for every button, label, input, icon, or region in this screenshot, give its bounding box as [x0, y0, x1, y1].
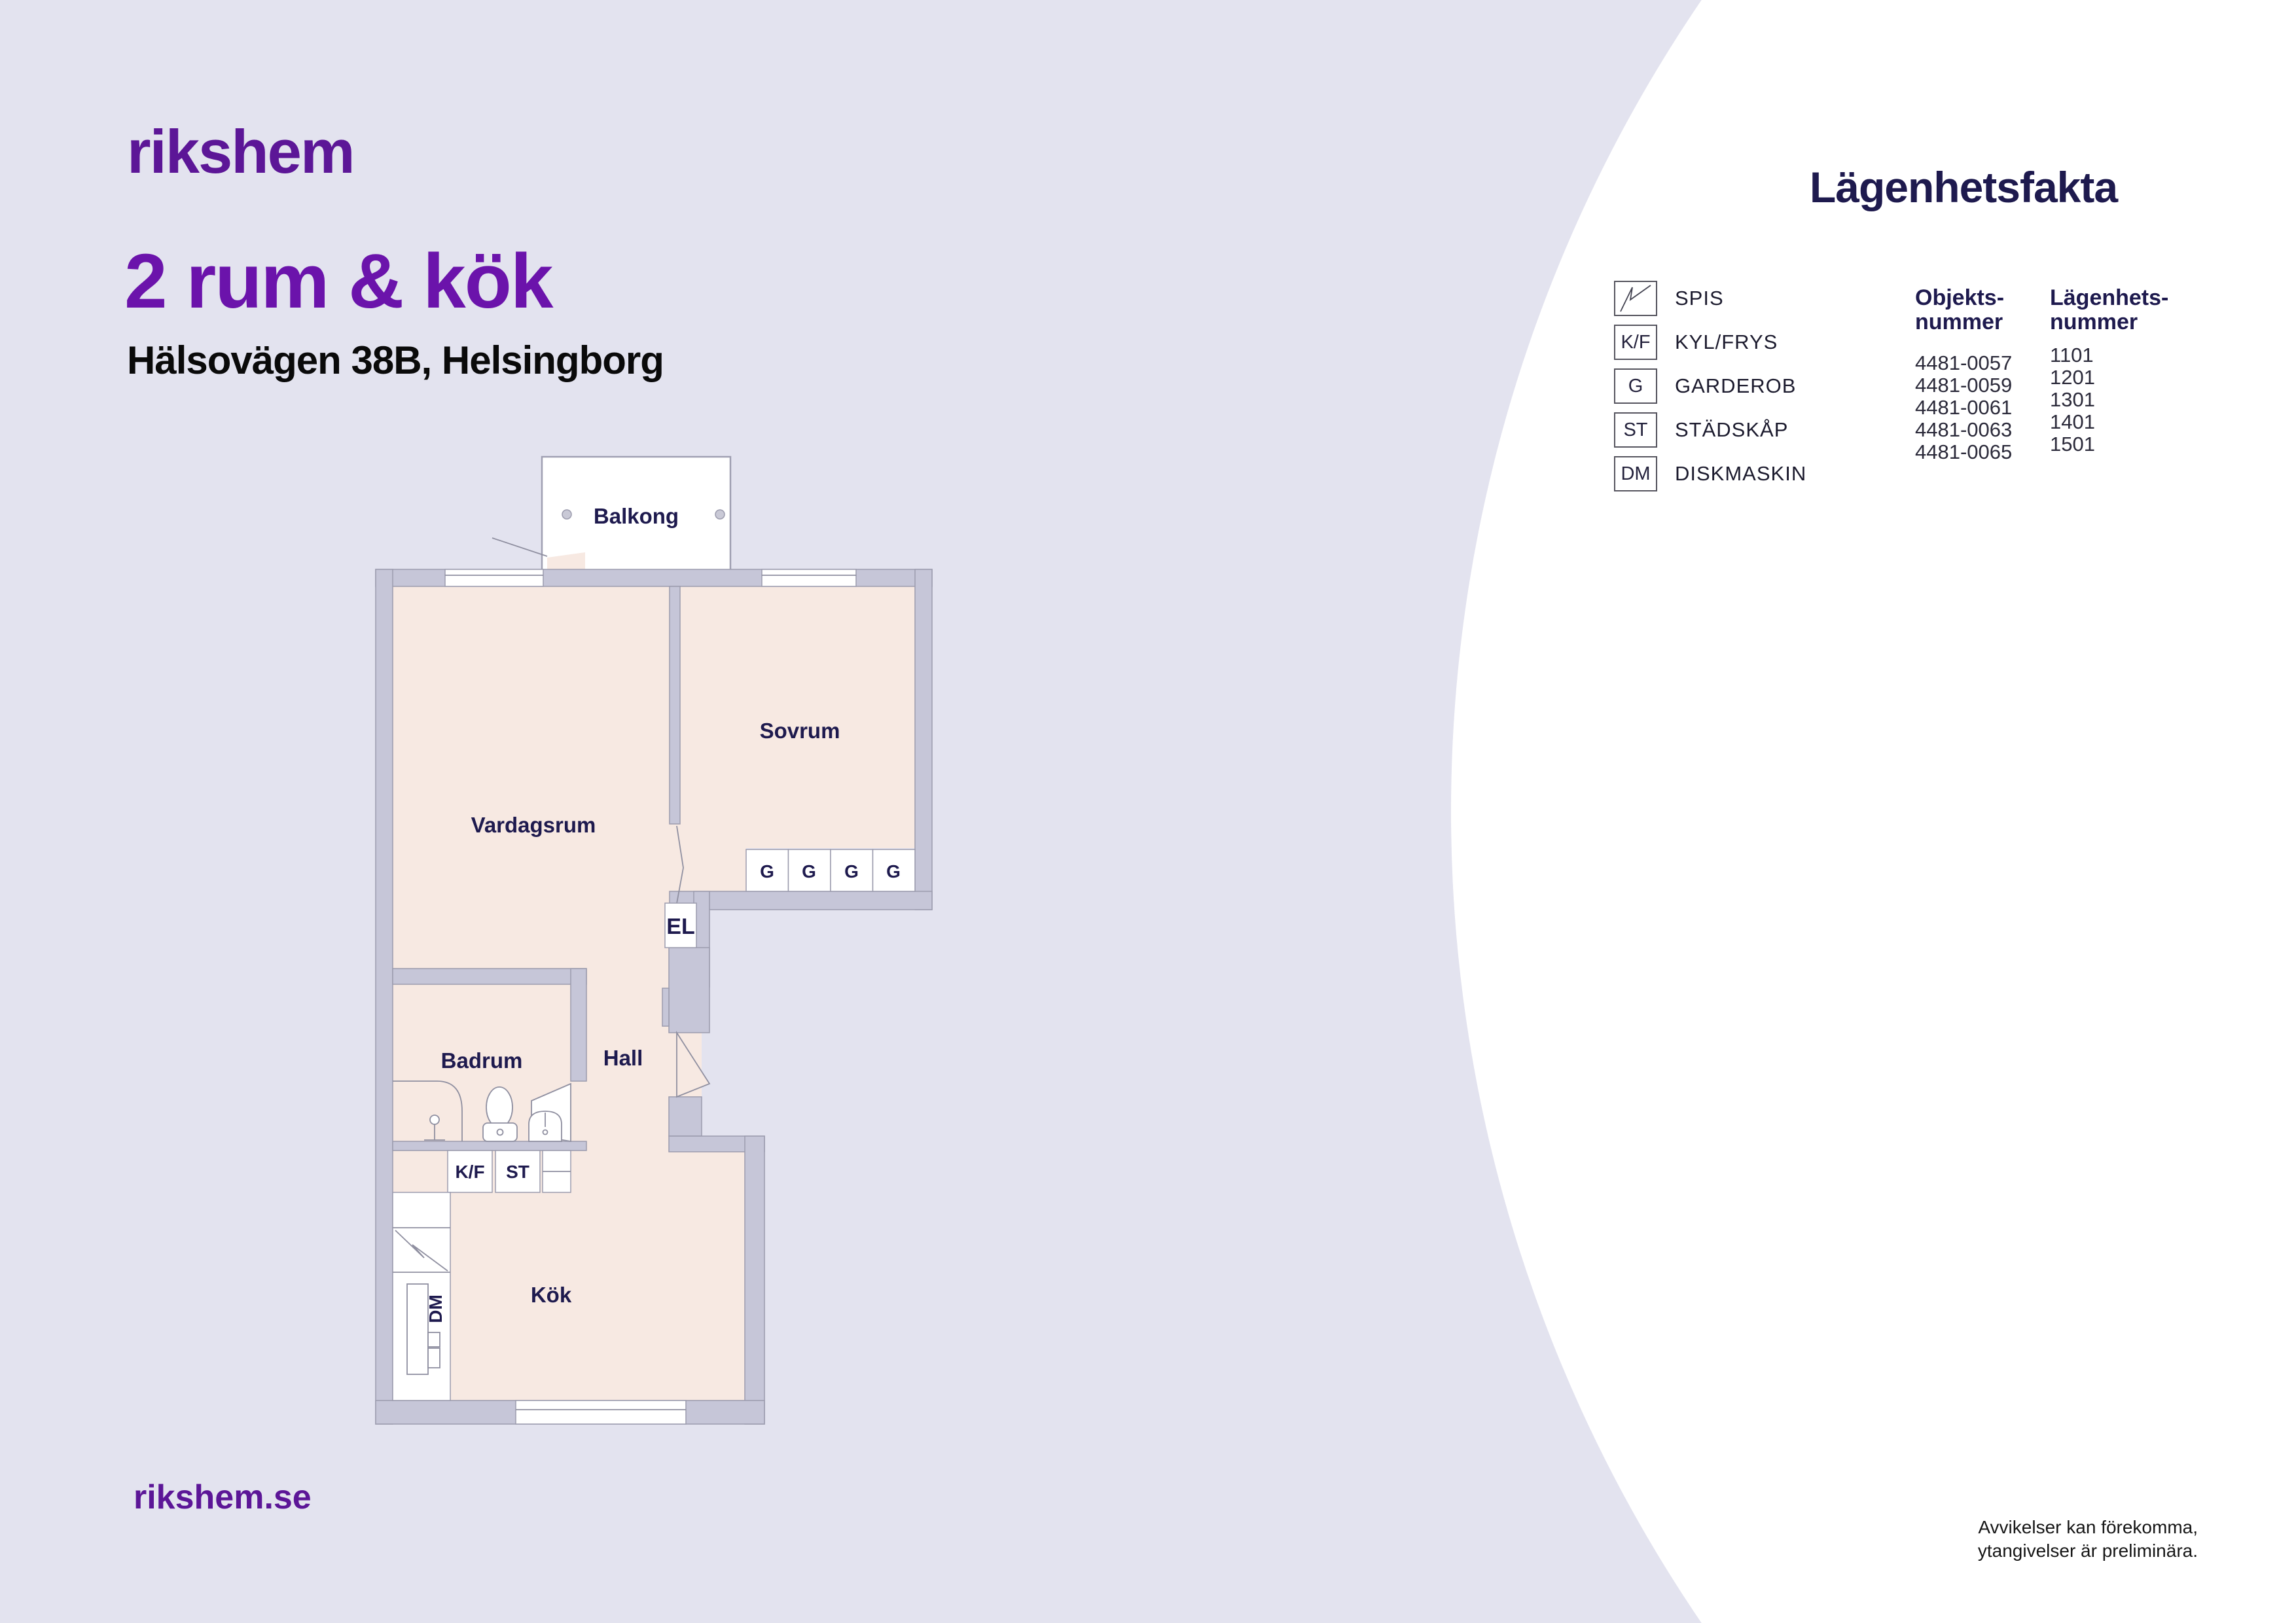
legend-row-kylfrys: K/F KYL/FRYS	[1614, 325, 1806, 360]
kitchen-window	[516, 1400, 686, 1424]
wardrobe-box-icon: G	[1614, 368, 1657, 404]
wall-bathroom-bottom	[393, 1141, 586, 1150]
bedroom-corner-floor	[680, 848, 746, 891]
facts-heading: Lägenhetsfakta	[1715, 162, 2212, 212]
bedroom-floor	[680, 586, 915, 848]
apartment-header-line1: Lägenhets-	[2050, 286, 2168, 310]
legend-row-garderob: G GARDEROB	[1614, 368, 1806, 404]
wall-bathroom-right	[571, 969, 586, 1081]
dishwasher-box-icon: DM	[1614, 456, 1657, 491]
legend-label: DISKMASKIN	[1675, 462, 1806, 486]
disclaimer-text: Avvikelser kan förekomma, ytangivelser ä…	[1978, 1516, 2198, 1563]
room-label-balcony: Balkong	[594, 504, 679, 528]
cabinet-label-g: G	[886, 861, 901, 882]
apartment-number-value: 1101	[2050, 344, 2168, 366]
object-header-line2: nummer	[1915, 310, 2012, 334]
floorplan-drawing: Balkong Vardagsrum Sovrum Badrum Hall Kö…	[367, 445, 942, 1440]
washbasin-drain-icon	[543, 1130, 548, 1135]
legend-label: SPIS	[1675, 287, 1724, 310]
balcony-post-icon	[562, 510, 571, 519]
floor-drain-icon	[430, 1115, 439, 1124]
room-label-kitchen: Kök	[531, 1283, 572, 1307]
apartment-number-values: 1101 1201 1301 1401 1501	[2050, 344, 2168, 455]
cleaning-box-icon: ST	[1614, 412, 1657, 448]
object-number-value: 4481-0065	[1915, 441, 2012, 463]
wall-hall-right-upper	[669, 948, 709, 1033]
sink-basin-icon	[428, 1348, 440, 1368]
balcony-door-leaf	[492, 538, 547, 556]
apartment-number-value: 1401	[2050, 411, 2168, 433]
wall-kitchen-right	[745, 1136, 764, 1424]
bedroom-window	[762, 569, 856, 586]
legend: SPIS K/F KYL/FRYS G GARDEROB ST STÄDSKÅP…	[1614, 281, 1806, 491]
wall-right-upper	[915, 569, 932, 910]
panel-circle-background	[1451, 0, 2296, 1623]
stove-zigzag-icon	[1614, 281, 1657, 316]
wall-entrance-jamb	[662, 988, 669, 1026]
sink-basin-icon	[428, 1332, 440, 1347]
wall-bathroom-top	[393, 969, 586, 984]
room-label-bedroom: Sovrum	[760, 719, 840, 743]
page-subtitle: Hälsovägen 38B, Helsingborg	[127, 338, 664, 383]
apartment-header-line2: nummer	[2050, 310, 2168, 334]
website-link: rikshem.se	[134, 1478, 312, 1517]
room-label-living-room: Vardagsrum	[471, 813, 596, 837]
living-room-floor	[393, 586, 670, 969]
legend-label: GARDEROB	[1675, 374, 1796, 398]
fridge-box-icon: K/F	[1614, 325, 1657, 360]
balcony-post-icon	[715, 510, 725, 519]
toilet-button-icon	[497, 1130, 503, 1135]
cabinet-label-g: G	[802, 861, 816, 882]
object-number-values: 4481-0057 4481-0059 4481-0061 4481-0063 …	[1915, 352, 2012, 463]
living-room-window	[445, 569, 543, 586]
cabinet-label-st: ST	[506, 1162, 529, 1182]
cabinet-label-kf: K/F	[455, 1162, 484, 1182]
object-number-value: 4481-0059	[1915, 374, 2012, 397]
toilet-icon	[486, 1087, 512, 1128]
wall-living-bedroom-divider	[670, 586, 680, 824]
legend-row-spis: SPIS	[1614, 281, 1806, 316]
room-label-bathroom: Badrum	[441, 1048, 523, 1073]
object-number-value: 4481-0061	[1915, 397, 2012, 419]
apartment-number-value: 1201	[2050, 366, 2168, 389]
object-number-value: 4481-0063	[1915, 419, 2012, 441]
object-header-line1: Objekts-	[1915, 286, 2012, 310]
cabinet-label-g: G	[844, 861, 859, 882]
apartment-number-value: 1501	[2050, 433, 2168, 455]
apartment-number-column: Lägenhets- nummer 1101 1201 1301 1401 15…	[2050, 286, 2168, 455]
room-label-hall: Hall	[603, 1046, 643, 1070]
brand-logo: rikshem	[127, 116, 354, 187]
legend-label: STÄDSKÅP	[1675, 418, 1788, 442]
object-number-column: Objekts- nummer 4481-0057 4481-0059 4481…	[1915, 286, 2012, 463]
wall-hall-right-lower	[669, 1097, 702, 1136]
bathroom-doorway-floor	[571, 1081, 586, 1141]
object-number-value: 4481-0057	[1915, 352, 2012, 374]
apartment-number-value: 1301	[2050, 389, 2168, 411]
legend-row-stadskap: ST STÄDSKÅP	[1614, 412, 1806, 448]
cabinet-label-dm: DM	[425, 1294, 446, 1323]
object-number-header: Objekts- nummer	[1915, 286, 2012, 334]
wall-left	[376, 569, 393, 1424]
legend-label: KYL/FRYS	[1675, 330, 1778, 354]
legend-row-diskmaskin: DM DISKMASKIN	[1614, 456, 1806, 491]
cabinet-label-el: EL	[666, 914, 694, 939]
disclaimer-line1: Avvikelser kan förekomma,	[1978, 1516, 2198, 1539]
page-title: 2 rum & kök	[124, 237, 552, 326]
stove-zigzag-glyph	[1617, 283, 1654, 314]
apartment-number-header: Lägenhets- nummer	[2050, 286, 2168, 334]
cabinet-label-g: G	[760, 861, 774, 882]
disclaimer-line2: ytangivelser är preliminära.	[1978, 1539, 2198, 1563]
